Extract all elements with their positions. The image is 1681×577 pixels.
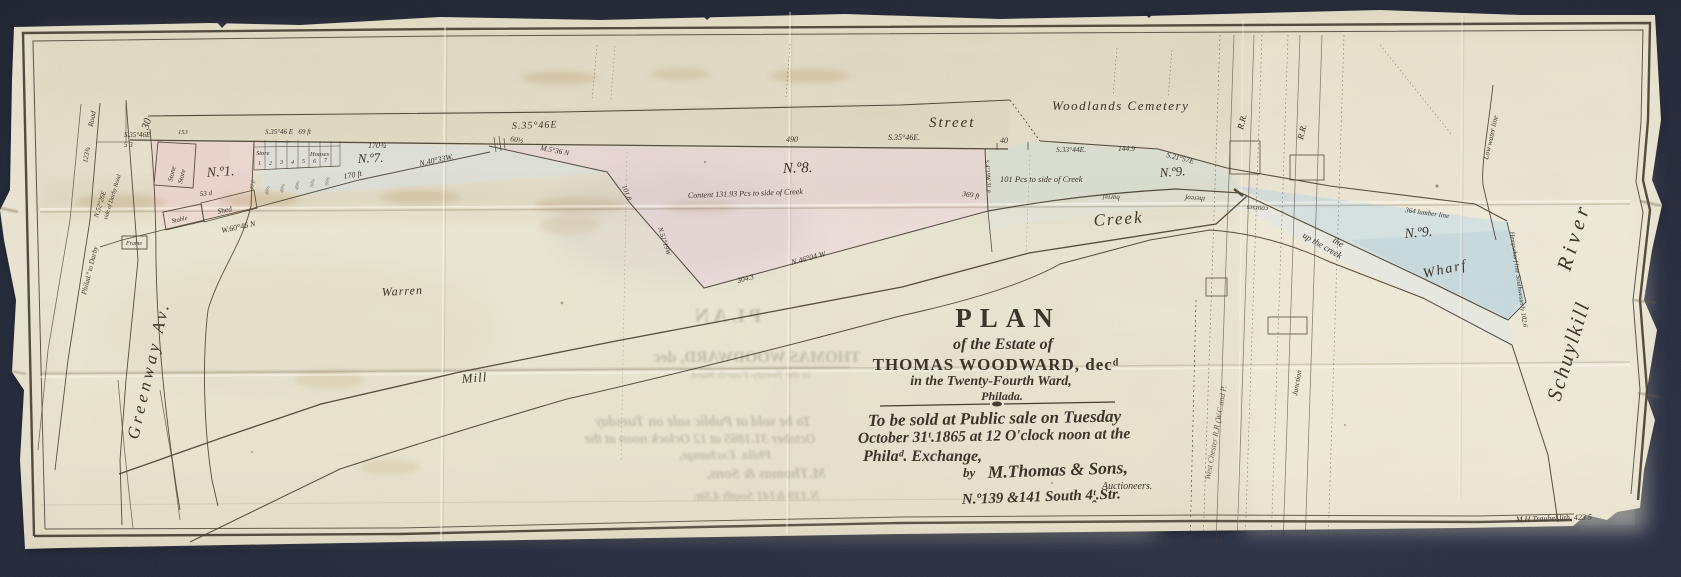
- svg-text:Woodlands Cemetery: Woodlands Cemetery: [1052, 98, 1189, 113]
- svg-text:barrel: barrel: [1102, 193, 1120, 202]
- svg-text:4: 4: [291, 159, 294, 166]
- svg-text:170¾: 170¾: [368, 141, 386, 150]
- svg-text:N.º9.: N.º9.: [1403, 225, 1433, 242]
- svg-text:THOMAS WOODWARD, decᵈ: THOMAS WOODWARD, decᵈ: [873, 355, 1120, 374]
- svg-text:M.Thomas & Sons,: M.Thomas & Sons,: [706, 466, 827, 482]
- svg-text:S.35°46 E 69 ft: S.35°46 E 69 ft: [265, 128, 312, 136]
- svg-text:Creek: Creek: [1093, 208, 1144, 230]
- svg-text:Mill: Mill: [460, 369, 488, 386]
- svg-text:5 3: 5 3: [124, 141, 133, 149]
- svg-text:Houses: Houses: [309, 151, 330, 158]
- svg-text:6: 6: [313, 159, 316, 165]
- svg-text:Philaᵈ. Exchange,: Philaᵈ. Exchange,: [862, 448, 982, 465]
- svg-text:N.º1.: N.º1.: [205, 164, 235, 181]
- svg-text:N.º8.: N.º8.: [782, 160, 813, 177]
- svg-text:S.35°46E: S.35°46E: [512, 119, 558, 132]
- svg-text:PLAN: PLAN: [955, 303, 1061, 333]
- svg-text:in the Twenty-Fourth Ward,: in the Twenty-Fourth Ward,: [689, 369, 810, 381]
- svg-text:2: 2: [269, 161, 272, 167]
- svg-text:N.º9.: N.º9.: [1158, 163, 1186, 180]
- svg-text:101 Pcs to side of Creek: 101 Pcs to side of Creek: [1000, 174, 1083, 184]
- svg-text:THOMAS WOODWARD, dec: THOMAS WOODWARD, dec: [653, 349, 860, 366]
- svg-text:5: 5: [302, 159, 305, 165]
- svg-text:October 31.1865 at 12 Oclock n: October 31.1865 at 12 Oclock noon at the: [585, 431, 816, 446]
- svg-text:Warren: Warren: [381, 283, 423, 299]
- svg-text:in the Twenty-Fourth Ward,: in the Twenty-Fourth Ward,: [910, 374, 1072, 389]
- svg-text:courses: courses: [1246, 203, 1268, 212]
- svg-text:S.35°46E: S.35°46E: [124, 131, 151, 139]
- svg-text:S.35°46E.: S.35°46E.: [888, 133, 920, 142]
- svg-text:N.139 &141 South 4.Str.: N.139 &141 South 4.Str.: [693, 489, 820, 503]
- svg-text:3: 3: [279, 160, 283, 166]
- svg-text:40: 40: [1000, 136, 1008, 145]
- svg-text:Phila. Exchange,: Phila. Exchange,: [679, 447, 772, 462]
- svg-text:by: by: [963, 465, 976, 480]
- svg-text:Frame: Frame: [125, 241, 142, 247]
- svg-text:Street: Street: [929, 115, 975, 131]
- svg-text:S.33°44E.: S.33°44E.: [1056, 145, 1086, 154]
- svg-text:thereof: thereof: [1184, 194, 1205, 203]
- svg-text:153: 153: [178, 129, 189, 136]
- svg-text:Store: Store: [256, 150, 270, 157]
- svg-text:490: 490: [786, 135, 798, 144]
- svg-text:of the Estate of: of the Estate of: [953, 336, 1055, 353]
- svg-text:Philada.: Philada.: [981, 389, 1023, 403]
- svg-text:144.9: 144.9: [1118, 144, 1135, 153]
- svg-text:1: 1: [258, 161, 261, 167]
- svg-text:53 d: 53 d: [199, 189, 212, 198]
- svg-text:PLAN: PLAN: [691, 305, 761, 327]
- svg-text:To be sold at Public sale on T: To be sold at Public sale on Tuesday: [594, 414, 811, 430]
- svg-text:N.º7.: N.º7.: [356, 150, 383, 166]
